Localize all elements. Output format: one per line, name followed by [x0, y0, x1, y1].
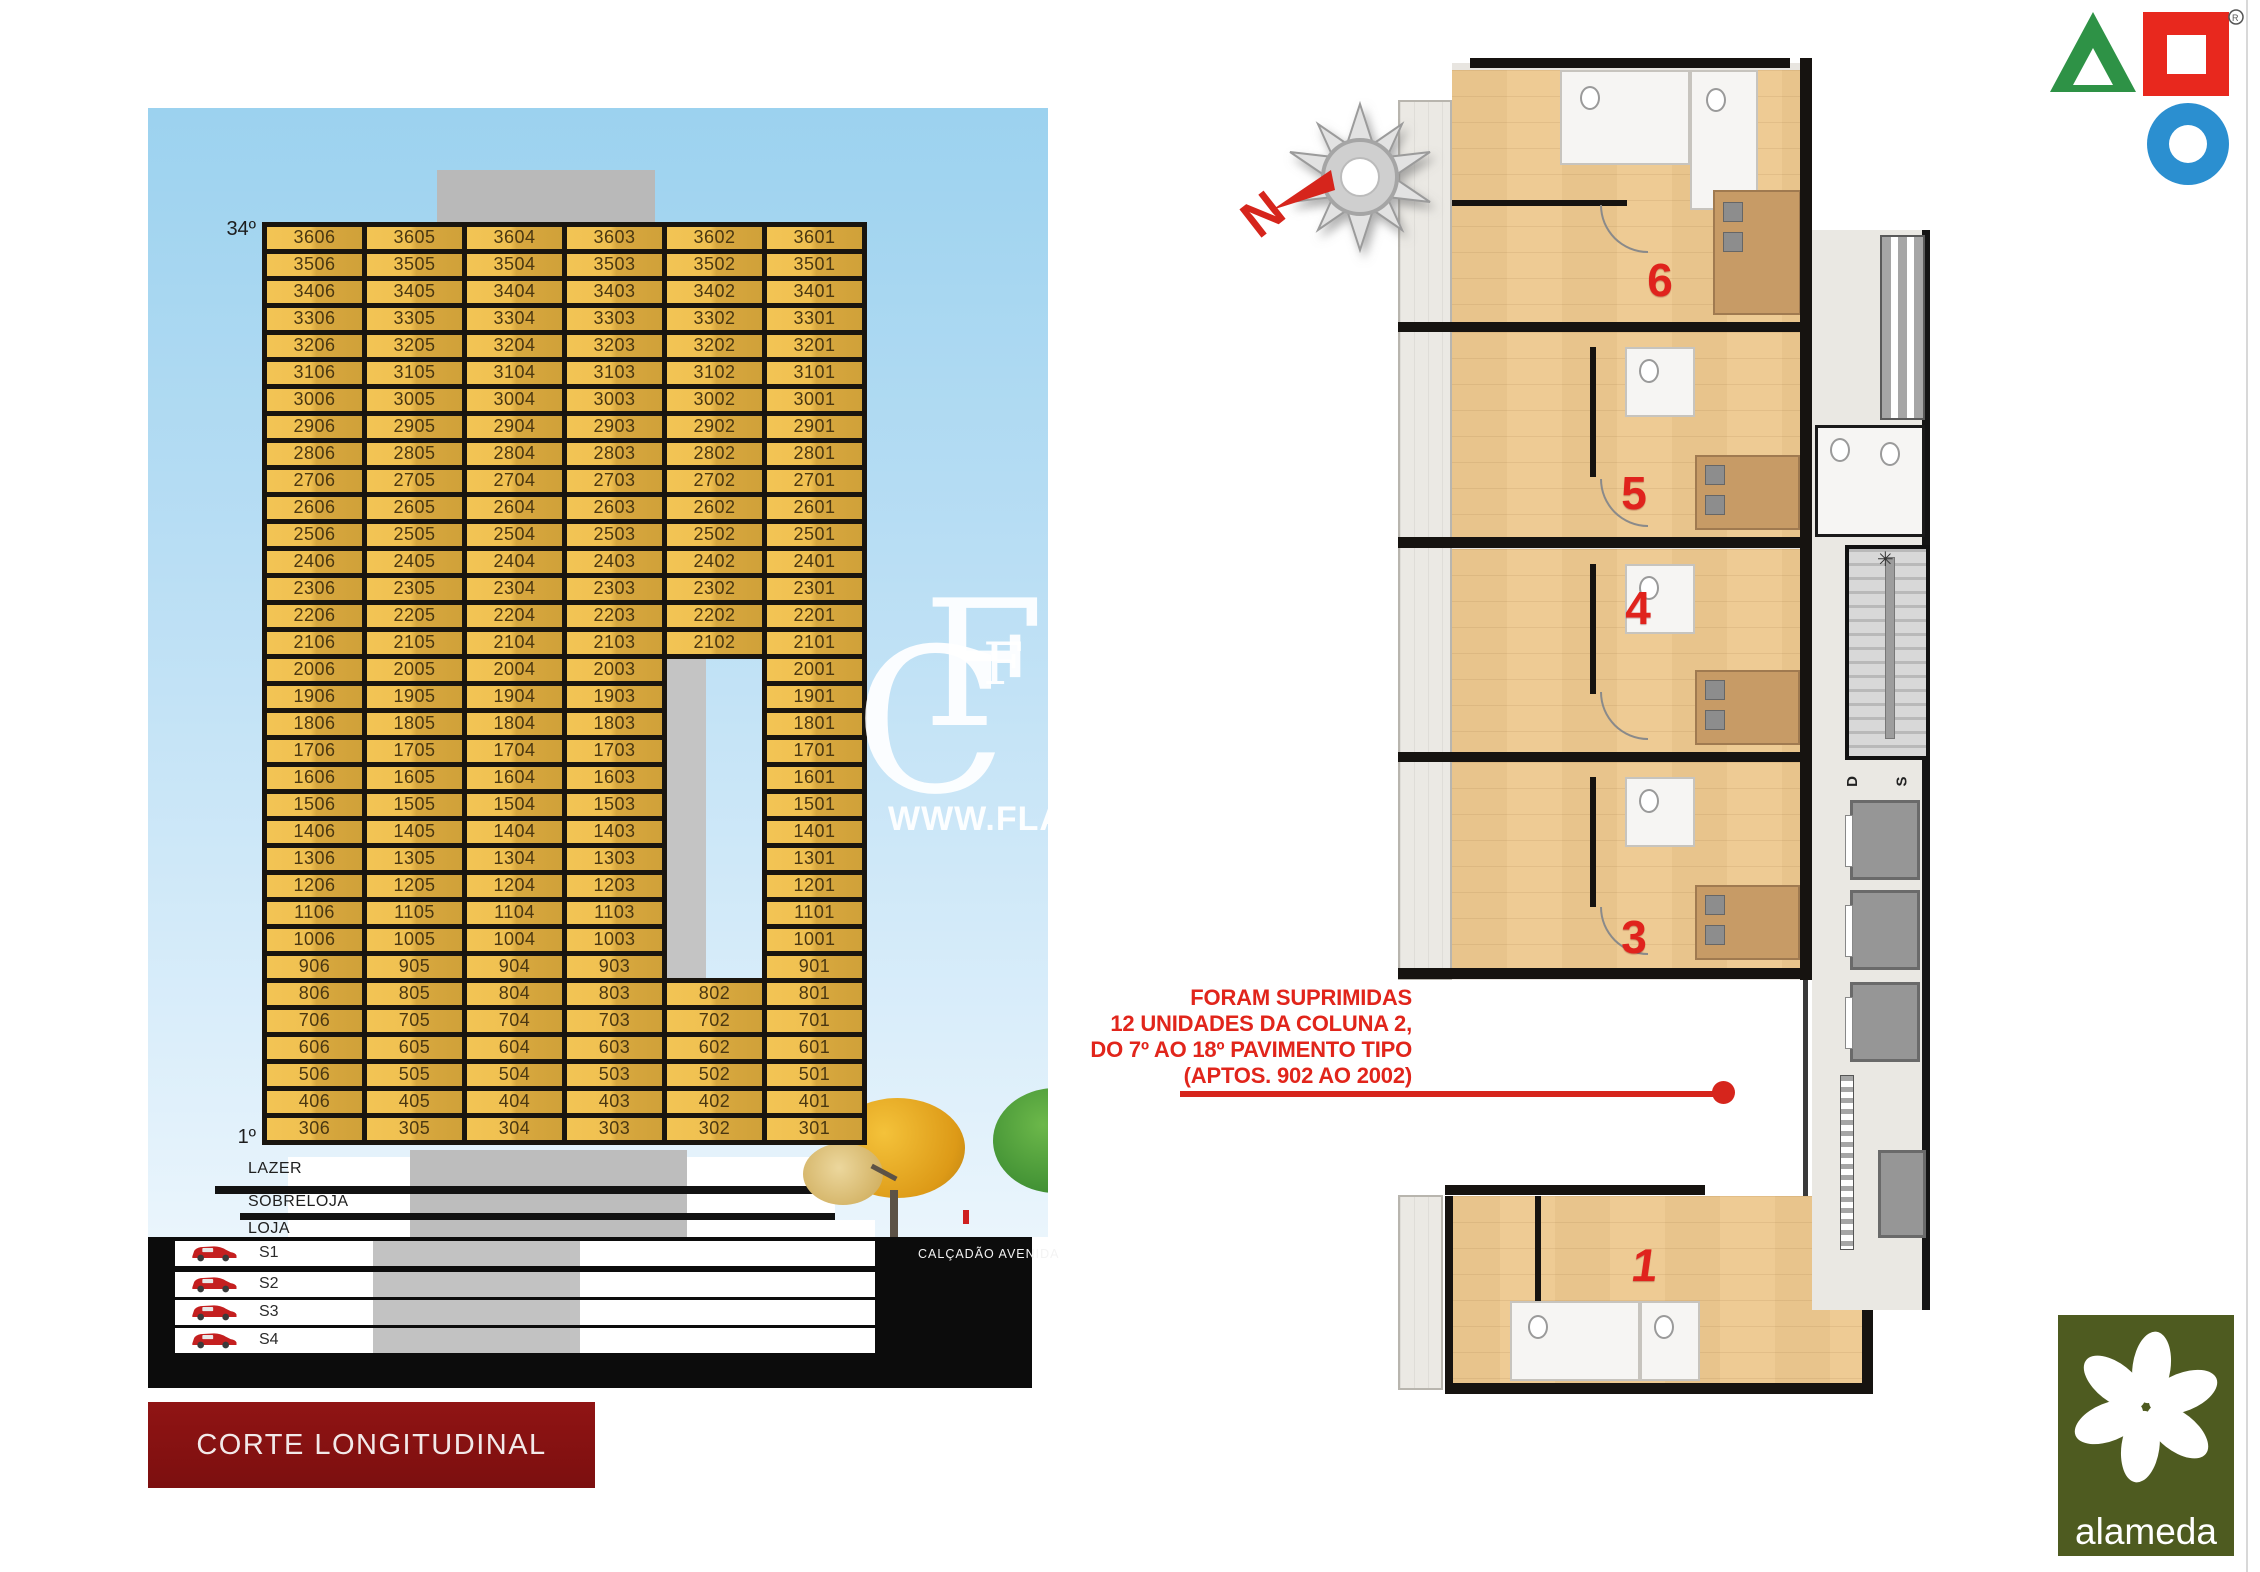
north-arrow	[1272, 170, 1335, 210]
core-segment	[373, 1300, 580, 1325]
lazer-label: LAZER	[248, 1160, 302, 1178]
car-icon	[187, 1274, 241, 1294]
car-icon	[187, 1330, 241, 1350]
core-segment	[373, 1272, 580, 1297]
corridor-wall	[1803, 980, 1808, 1196]
apartment-cell: 306	[262, 1113, 367, 1145]
service-elevator	[1878, 1150, 1926, 1238]
floor-plan: ✳ D S 6 5 4 3 1	[1395, 55, 1940, 1405]
louver-vent	[1880, 235, 1925, 420]
watermark-name: FLA	[983, 630, 1048, 698]
core-segment	[373, 1241, 580, 1266]
section-title-banner: CORTE LONGITUDINAL	[148, 1402, 595, 1488]
bathroom	[1510, 1301, 1640, 1381]
plan-unit-number: 6	[1638, 253, 1682, 307]
partition-wall	[1590, 777, 1596, 907]
leader-line	[1180, 1091, 1720, 1097]
partition-wall	[1590, 347, 1596, 477]
section-title: CORTE LONGITUDINAL	[196, 1429, 546, 1462]
note-line: 12 UNIDADES DA COLUNA 2,	[1080, 1011, 1412, 1037]
section-panel: LAZER SOBRELOJA LOJA 3606360536043603360…	[148, 108, 1048, 1237]
kitchen	[1695, 670, 1800, 745]
plan-unit-number: 3	[1612, 910, 1656, 964]
flower-icon	[2058, 1315, 2234, 1505]
plan-unit-number: 1	[1619, 1238, 1671, 1292]
unit-divider-wall	[1398, 537, 1812, 548]
partition-wall	[1590, 564, 1596, 694]
exterior-wall	[1453, 1383, 1868, 1394]
exterior-wall	[1445, 1196, 1453, 1394]
bathroom	[1640, 1301, 1700, 1381]
unit-divider-wall	[1445, 1185, 1705, 1195]
louver-vent	[1840, 1075, 1854, 1250]
note-line: FORAM SUPRIMIDAS	[1080, 985, 1412, 1011]
stair-up-label: S	[1894, 776, 1911, 786]
tree-orange-lower-icon	[803, 1143, 883, 1205]
kitchen	[1695, 885, 1800, 960]
apartment-cell: 305	[362, 1113, 467, 1145]
stair-star-icon: ✳	[1877, 547, 1894, 572]
core-wc	[1815, 425, 1925, 537]
car-icon	[187, 1302, 241, 1322]
leader-dot	[1712, 1081, 1735, 1104]
elevator	[1850, 982, 1920, 1062]
person-figure	[963, 1210, 969, 1224]
slab-line	[240, 1213, 835, 1220]
north-compass: N	[1235, 82, 1470, 282]
suppressed-units-note: FORAM SUPRIMIDAS 12 UNIDADES DA COLUNA 2…	[1080, 985, 1412, 1089]
plan-unit-number: 4	[1616, 581, 1660, 635]
suppressed-units-area	[1452, 980, 1812, 1196]
terrace-strip	[1398, 1195, 1443, 1390]
bathroom	[1625, 777, 1695, 847]
bathroom	[1560, 70, 1690, 165]
basement-level-label: S3	[259, 1303, 279, 1321]
tower-floor-row: 306305304303302301	[262, 1113, 867, 1145]
unit-divider-wall	[1398, 752, 1812, 762]
apartment-cell: 301	[762, 1113, 867, 1145]
car-icon	[187, 1243, 241, 1263]
alameda-wordmark: alameda	[2058, 1511, 2234, 1553]
bathroom	[1625, 347, 1695, 417]
unit-divider-wall	[1398, 322, 1812, 332]
top-floor-label: 34º	[208, 218, 256, 241]
unit-divider-wall	[1398, 968, 1812, 979]
kitchen	[1713, 190, 1801, 315]
stairwell: ✳	[1845, 545, 1930, 760]
registered-mark: R	[2232, 13, 2239, 23]
watermark-url: WWW.FLAVIO	[888, 800, 1048, 839]
bathroom	[1690, 70, 1758, 210]
apartment-cell: 302	[662, 1113, 767, 1145]
bottom-floor-label: 1º	[220, 1126, 256, 1149]
basement-level-label: S1	[259, 1244, 279, 1262]
apartment-cell: 2102	[662, 627, 767, 659]
apartment-cell: 304	[462, 1113, 567, 1145]
core-segment	[373, 1328, 580, 1353]
tower-roof-core	[437, 170, 655, 227]
basement-level-row: S2	[175, 1272, 875, 1297]
elevator	[1850, 800, 1920, 880]
stair-down-label: D	[1844, 776, 1861, 787]
tree-green-icon	[993, 1088, 1048, 1193]
page-edge-line	[2246, 0, 2248, 1572]
street-label: CALÇADÃO AVENIDA	[918, 1247, 1060, 1261]
tower-grid: 3606360536043603360236013506350535043503…	[262, 222, 867, 1145]
note-line: (APTOS. 902 AO 2002)	[1080, 1063, 1412, 1089]
basement-level-label: S2	[259, 1275, 279, 1293]
exterior-wall	[1800, 58, 1812, 980]
loja-label: LOJA	[248, 1220, 290, 1237]
sobreloja-label: SOBRELOJA	[248, 1193, 349, 1211]
tree-trunk	[890, 1190, 898, 1237]
basement-section: S1 S2 S3 S4	[148, 1237, 1032, 1388]
north-letter: N	[1235, 180, 1296, 249]
page: LAZER SOBRELOJA LOJA 3606360536043603360…	[0, 0, 2260, 1572]
developer-logo: R	[2048, 4, 2248, 194]
partition-wall	[1535, 1196, 1541, 1301]
note-line: DO 7º AO 18º PAVIMENTO TIPO	[1080, 1037, 1412, 1063]
alameda-logo: alameda	[2058, 1315, 2234, 1556]
plan-unit-number: 5	[1612, 466, 1656, 520]
basement-level-row: S1	[175, 1241, 875, 1266]
elevator	[1850, 890, 1920, 970]
basement-level-label: S4	[259, 1331, 279, 1349]
apartment-cell: 303	[562, 1113, 667, 1145]
exterior-wall	[1470, 58, 1790, 68]
basement-level-row: S3	[175, 1300, 875, 1325]
basement-level-row: S4	[175, 1328, 875, 1353]
kitchen	[1695, 455, 1800, 530]
